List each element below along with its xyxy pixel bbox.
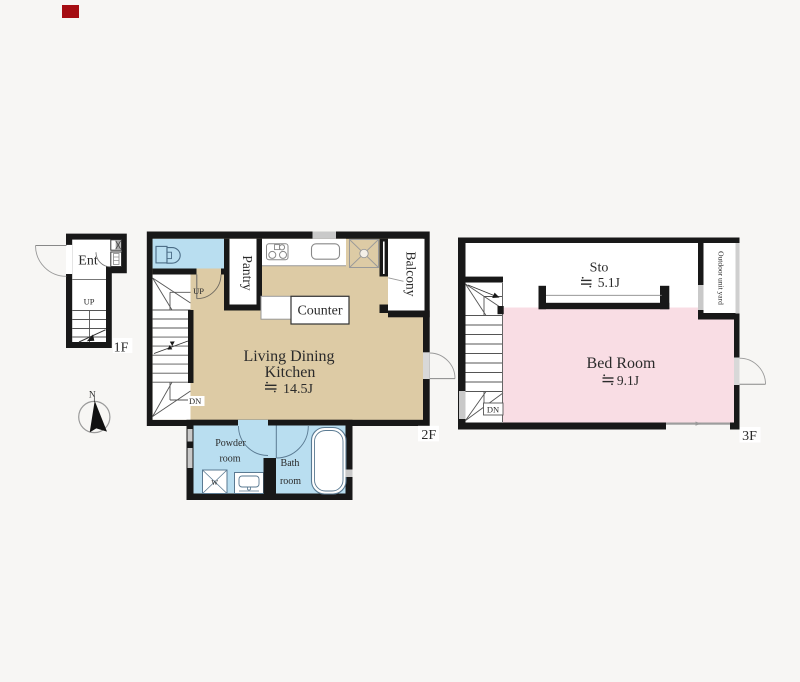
svg-text:Sto: Sto: [590, 261, 609, 276]
svg-text:UP: UP: [84, 297, 95, 307]
svg-text:Powder: Powder: [215, 438, 246, 449]
svg-text:Counter: Counter: [297, 304, 342, 319]
svg-text:Bath: Bath: [281, 458, 300, 469]
svg-text:DN: DN: [487, 405, 499, 415]
svg-text:W: W: [211, 479, 218, 487]
svg-text:Living Dining: Living Dining: [243, 348, 334, 365]
svg-text:Bed Room: Bed Room: [587, 355, 656, 372]
svg-text:9.1J: 9.1J: [617, 373, 639, 388]
svg-text:14.5J: 14.5J: [283, 382, 314, 397]
svg-text:3F: 3F: [742, 429, 757, 444]
svg-text:DN: DN: [189, 396, 201, 406]
svg-text:room: room: [280, 476, 301, 487]
svg-text:2F: 2F: [421, 428, 436, 443]
svg-text:room: room: [219, 454, 240, 465]
svg-text:Outdoor unit yard: Outdoor unit yard: [717, 251, 726, 305]
svg-text:Balcony: Balcony: [404, 252, 419, 297]
svg-text:UP: UP: [193, 286, 204, 296]
svg-text:Pantry: Pantry: [240, 255, 255, 290]
svg-text:1F: 1F: [114, 341, 129, 356]
svg-text:Kitchen: Kitchen: [265, 364, 316, 381]
svg-text:5.1J: 5.1J: [598, 275, 620, 290]
svg-text:Ent: Ent: [78, 254, 98, 269]
